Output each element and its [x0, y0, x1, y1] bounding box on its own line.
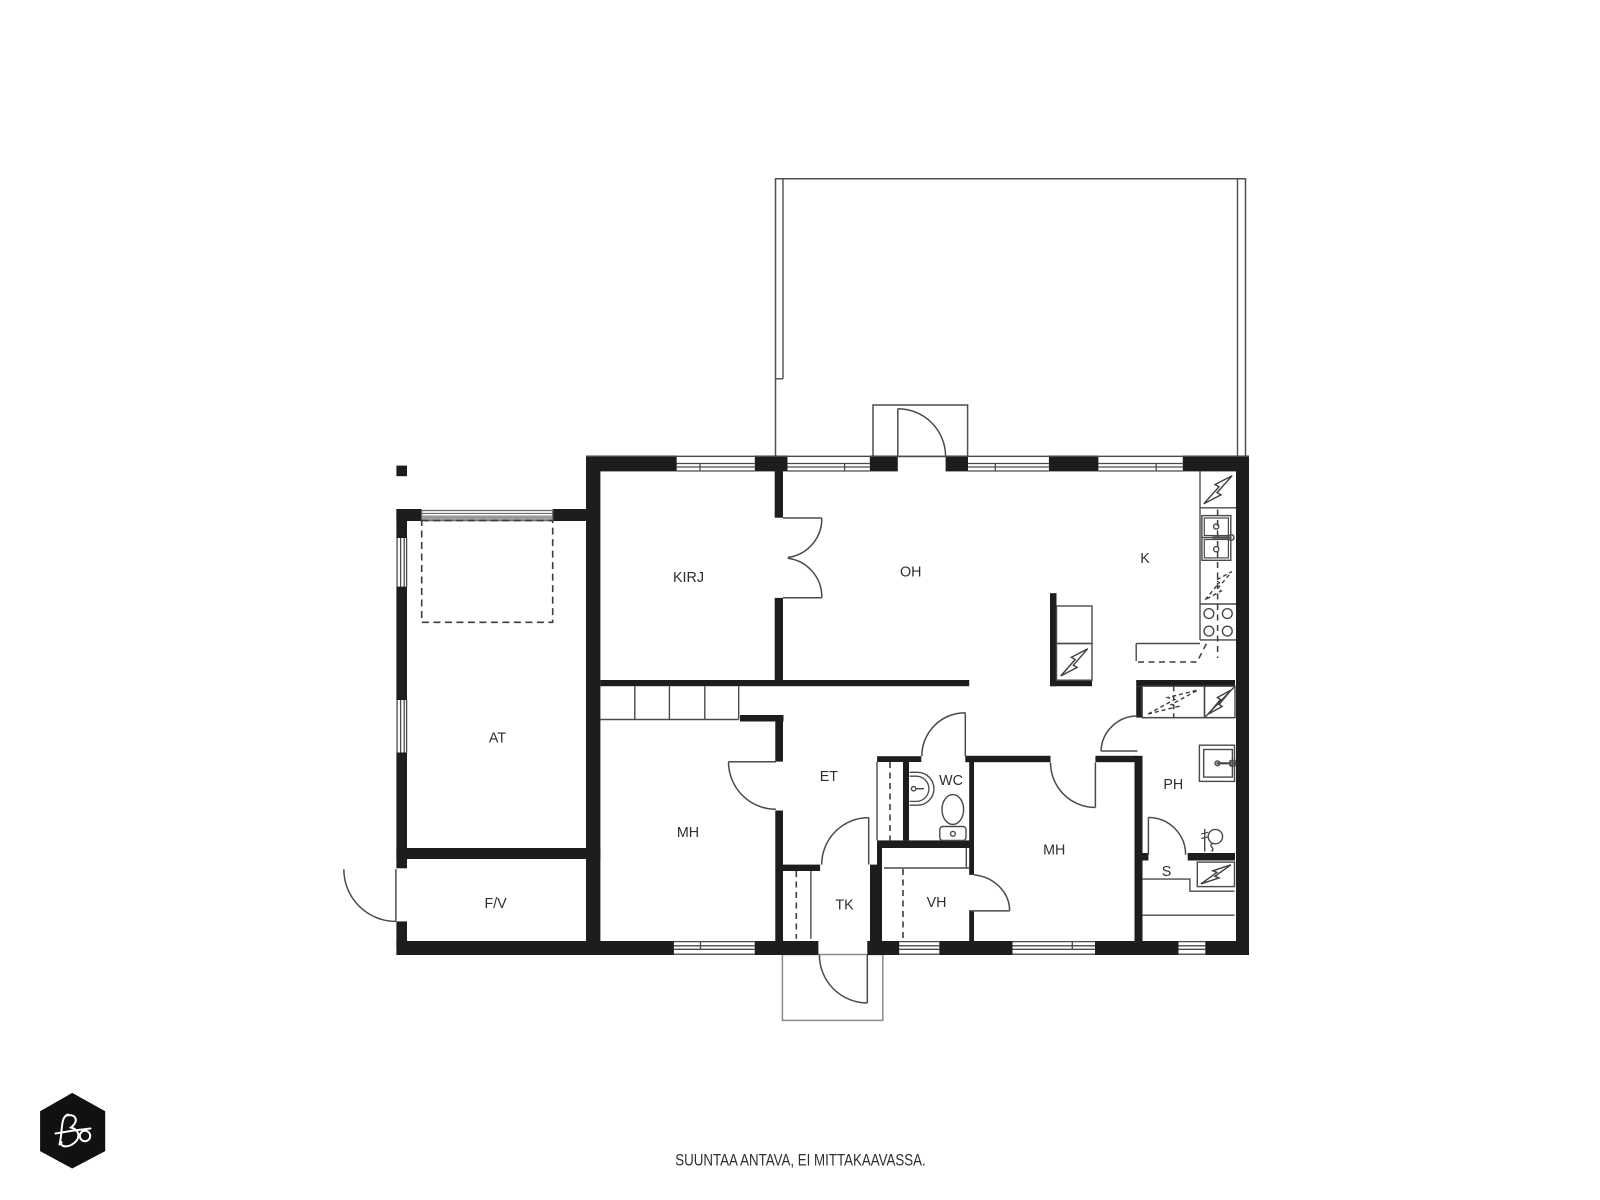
svg-text:VH: VH — [927, 895, 947, 911]
svg-text:TK: TK — [835, 898, 854, 914]
svg-text:SUUNTAA ANTAVA, EI MITTAKAAVAS: SUUNTAA ANTAVA, EI MITTAKAAVASSA. — [675, 1150, 926, 1169]
svg-text:AT: AT — [489, 730, 506, 746]
svg-text:PH: PH — [1163, 777, 1183, 793]
svg-text:MH: MH — [677, 825, 699, 841]
svg-text:OH: OH — [900, 565, 921, 581]
svg-text:S: S — [1162, 864, 1172, 880]
svg-text:KIRJ: KIRJ — [673, 570, 704, 586]
svg-text:F/V: F/V — [484, 896, 507, 912]
svg-text:MH: MH — [1043, 843, 1065, 859]
svg-text:WC: WC — [939, 773, 963, 789]
svg-text:ET: ET — [820, 769, 839, 785]
svg-text:K: K — [1140, 551, 1150, 567]
